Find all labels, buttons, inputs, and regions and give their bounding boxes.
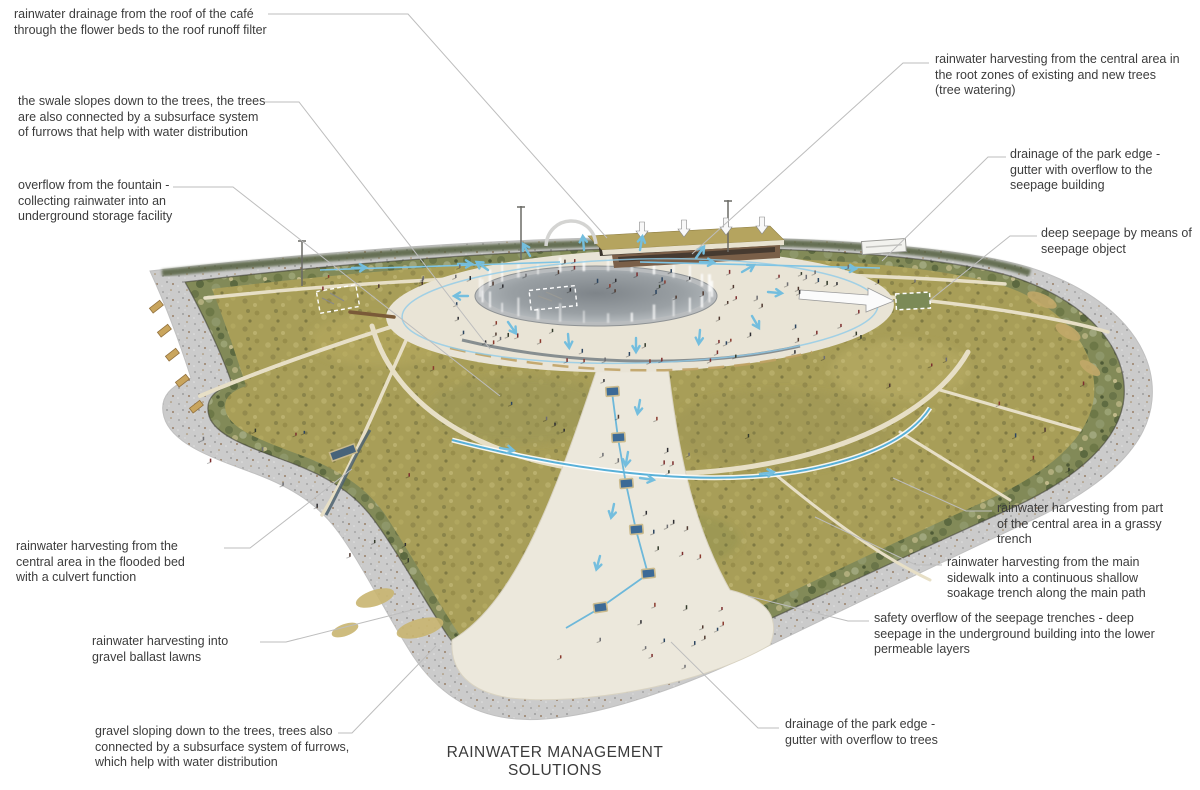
person-figure xyxy=(629,352,631,356)
person-figure xyxy=(798,338,800,342)
person-figure xyxy=(719,317,721,320)
person-figure xyxy=(609,284,611,287)
person-figure xyxy=(470,276,472,280)
person-figure xyxy=(602,453,604,456)
person-figure xyxy=(614,289,616,292)
person-figure xyxy=(726,341,728,344)
person-figure xyxy=(618,415,620,419)
person-figure xyxy=(735,296,737,299)
person-figure xyxy=(560,655,562,658)
person-figure xyxy=(687,526,689,530)
person-figure xyxy=(657,546,659,550)
annotation-cafe-roof-drainage: rainwater drainage from the roof of the … xyxy=(14,7,277,38)
person-figure xyxy=(702,291,704,295)
person-figure xyxy=(496,321,498,324)
person-figure xyxy=(799,290,801,294)
person-figure xyxy=(1083,381,1085,385)
person-figure xyxy=(748,434,750,437)
person-shadow xyxy=(207,462,211,463)
person-figure xyxy=(517,333,519,337)
person-figure xyxy=(649,359,651,363)
person-figure xyxy=(727,301,729,304)
person-figure xyxy=(999,402,1001,406)
person-figure xyxy=(729,270,731,274)
person-figure xyxy=(511,402,513,405)
person-figure xyxy=(525,274,527,277)
person-figure xyxy=(824,356,826,359)
annotation-gravel-ballast-lawns: rainwater harvesting into gravel ballast… xyxy=(92,634,242,665)
person-figure xyxy=(583,359,585,362)
person-figure xyxy=(654,603,656,607)
person-figure xyxy=(255,429,256,432)
person-figure xyxy=(408,558,410,562)
person-figure xyxy=(322,287,324,291)
person-figure xyxy=(718,340,720,343)
person-figure xyxy=(794,350,796,353)
annotation-fountain-overflow: overflow from the fountain - collecting … xyxy=(18,178,190,225)
person-figure xyxy=(735,355,737,358)
person-figure xyxy=(636,272,638,276)
person-figure xyxy=(210,459,212,463)
person-figure xyxy=(508,333,510,337)
person-figure xyxy=(566,358,568,362)
person-figure xyxy=(672,461,674,465)
annotation-seepage-trench-overflow: safety overflow of the seepage trenches … xyxy=(874,611,1160,658)
person-figure xyxy=(798,287,800,290)
person-figure xyxy=(1068,468,1070,471)
person-figure xyxy=(423,276,425,280)
person-figure xyxy=(848,265,850,269)
person-figure xyxy=(502,284,504,287)
person-figure xyxy=(722,622,724,626)
person-figure xyxy=(599,638,601,642)
person-figure xyxy=(860,335,862,339)
person-figure xyxy=(878,279,880,283)
person-figure xyxy=(645,646,647,649)
person-figure xyxy=(689,277,691,280)
seepage-object xyxy=(896,292,931,310)
person-figure xyxy=(603,379,605,382)
person-figure xyxy=(640,620,642,624)
person-figure xyxy=(688,453,690,456)
person-figure xyxy=(374,540,376,543)
diagram-title: RAINWATER MANAGEMENT SOLUTIONS xyxy=(402,744,708,780)
person-figure xyxy=(574,266,576,270)
person-figure xyxy=(653,530,655,534)
person-figure xyxy=(563,429,565,432)
person-figure xyxy=(558,270,560,274)
person-figure xyxy=(733,285,735,288)
person-figure xyxy=(750,333,752,337)
person-figure xyxy=(659,285,661,288)
person-figure xyxy=(540,339,542,343)
person-figure xyxy=(495,333,497,336)
person-figure xyxy=(1044,428,1046,432)
person-figure xyxy=(795,324,797,328)
person-figure xyxy=(295,433,297,436)
person-figure xyxy=(493,340,495,344)
person-figure xyxy=(546,417,548,420)
person-figure xyxy=(644,343,646,347)
person-figure xyxy=(328,275,330,278)
annotation-grassy-trench-harvesting: rainwater harvesting from part of the ce… xyxy=(997,501,1169,548)
person-figure xyxy=(618,458,620,462)
person-figure xyxy=(664,280,666,283)
person-figure xyxy=(686,605,688,609)
person-figure xyxy=(408,473,410,476)
person-figure xyxy=(858,310,860,314)
person-figure xyxy=(378,284,380,288)
annotation-edge-gutter-seepage-building: drainage of the park edge - gutter with … xyxy=(1010,147,1188,194)
annotation-edge-gutter-trees: drainage of the park edge - gutter with … xyxy=(785,717,953,748)
person-figure xyxy=(710,358,712,361)
person-shadow xyxy=(280,486,284,487)
person-figure xyxy=(656,417,658,421)
annotation-swale-to-trees: the swale slopes down to the trees, the … xyxy=(18,94,270,141)
person-figure xyxy=(778,275,780,278)
person-figure xyxy=(761,304,763,308)
person-figure xyxy=(455,275,457,278)
person-figure xyxy=(931,363,933,366)
person-figure xyxy=(646,511,648,515)
person-figure xyxy=(492,282,494,286)
person-figure xyxy=(651,654,653,657)
person-figure xyxy=(304,431,306,434)
person-figure xyxy=(615,279,617,282)
person-figure xyxy=(262,447,264,451)
leader-line xyxy=(268,14,607,238)
person-figure xyxy=(730,339,732,342)
person-figure xyxy=(700,554,702,558)
person-figure xyxy=(684,665,686,668)
person-figure xyxy=(604,358,606,362)
person-figure xyxy=(668,470,670,473)
annotation-gravel-slope-furrows: gravel sloping down to the trees, trees … xyxy=(95,724,353,771)
person-figure xyxy=(570,288,572,291)
person-shadow xyxy=(346,557,350,558)
person-figure xyxy=(554,423,556,426)
person-figure xyxy=(826,281,828,285)
annotation-deep-seepage-object: deep seepage by means of seepage object xyxy=(1041,226,1193,257)
person-figure xyxy=(655,290,657,294)
person-figure xyxy=(704,636,706,639)
person-figure xyxy=(673,520,675,524)
diagram-canvas: rainwater drainage from the roof of the … xyxy=(0,0,1200,790)
person-figure xyxy=(405,543,407,546)
person-figure xyxy=(914,280,916,283)
person-figure xyxy=(664,639,666,643)
person-figure xyxy=(500,337,502,340)
person-figure xyxy=(675,296,677,299)
annotation-sidewalk-soakage-trench: rainwater harvesting from the main sidew… xyxy=(947,555,1159,602)
person-figure xyxy=(814,270,816,273)
person-figure xyxy=(203,437,205,440)
person-figure xyxy=(787,282,789,285)
person-figure xyxy=(801,272,803,275)
person-figure xyxy=(667,525,669,528)
person-figure xyxy=(946,358,948,362)
person-figure xyxy=(316,504,318,508)
person-figure xyxy=(349,553,351,557)
person-figure xyxy=(717,350,719,354)
person-figure xyxy=(1015,433,1017,437)
person-figure xyxy=(574,259,576,262)
person-figure xyxy=(682,552,684,555)
person-figure xyxy=(1033,456,1035,460)
person-figure xyxy=(459,264,461,268)
person-figure xyxy=(282,482,284,485)
person-figure xyxy=(717,628,719,631)
person-figure xyxy=(670,269,672,272)
person-figure xyxy=(463,331,465,335)
person-figure xyxy=(818,278,820,282)
person-figure xyxy=(856,332,858,336)
person-figure xyxy=(889,384,891,387)
person-figure xyxy=(667,448,669,452)
person-figure xyxy=(806,275,808,279)
person-figure xyxy=(597,279,599,283)
person-figure xyxy=(816,331,818,335)
person-figure xyxy=(661,358,663,362)
person-figure xyxy=(552,329,554,332)
person-figure xyxy=(582,349,584,353)
person-figure xyxy=(756,296,758,300)
person-figure xyxy=(721,607,723,610)
seepage-building xyxy=(861,238,906,254)
annotation-root-zone-harvesting: rainwater harvesting from the central ar… xyxy=(935,52,1185,99)
person-figure xyxy=(564,260,566,264)
person-figure xyxy=(663,460,665,464)
person-figure xyxy=(661,277,663,281)
person-figure xyxy=(840,324,842,327)
person-figure xyxy=(433,366,435,370)
person-figure xyxy=(457,317,459,320)
person-figure xyxy=(694,641,696,645)
person-figure xyxy=(702,625,704,628)
person-figure xyxy=(836,282,838,285)
annotation-flooded-bed-harvesting: rainwater harvesting from the central ar… xyxy=(16,539,194,586)
